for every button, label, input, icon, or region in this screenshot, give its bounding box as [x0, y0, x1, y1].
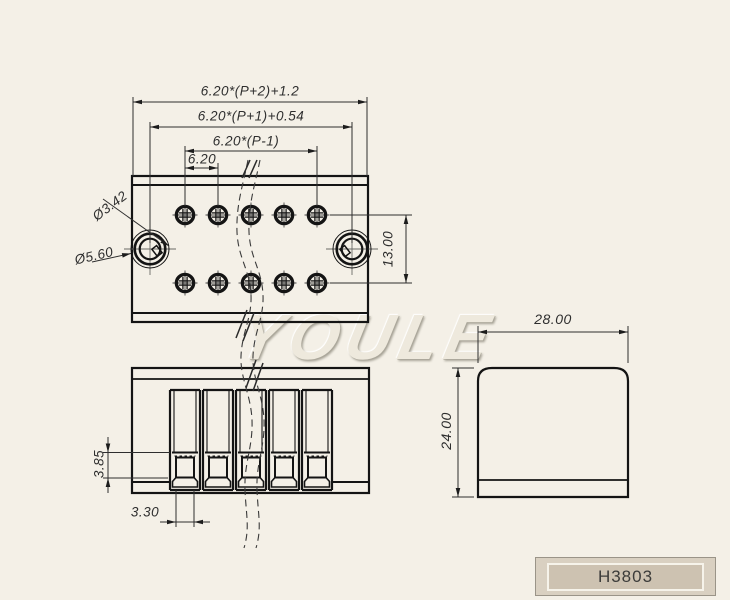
- part-number: H3803: [598, 567, 653, 587]
- dim-window-height: 3.85: [92, 450, 106, 478]
- terminal-screws-row1: [173, 203, 330, 228]
- dim-window-width: 3.30: [131, 505, 159, 519]
- dim-pole-span: 6.20*(P-1): [213, 134, 280, 148]
- dim-row-spacing: 13.00: [381, 231, 395, 267]
- terminal-screws-row2: [173, 271, 330, 296]
- dim-overall-width: 6.20*(P+2)+1.2: [201, 84, 300, 98]
- engineering-drawing: YOULE: [0, 0, 730, 600]
- drawing-linework: [0, 0, 730, 600]
- dim-height: 24.00: [439, 412, 453, 450]
- dim-mount-hole-span: 6.20*(P+1)+0.54: [198, 109, 305, 123]
- title-block-frame: H3803: [547, 563, 704, 591]
- title-block: H3803: [535, 557, 716, 596]
- front-view: [132, 368, 369, 493]
- dim-depth: 28.00: [534, 312, 572, 326]
- side-view: [478, 368, 628, 497]
- dim-pitch: 6.20: [188, 152, 216, 166]
